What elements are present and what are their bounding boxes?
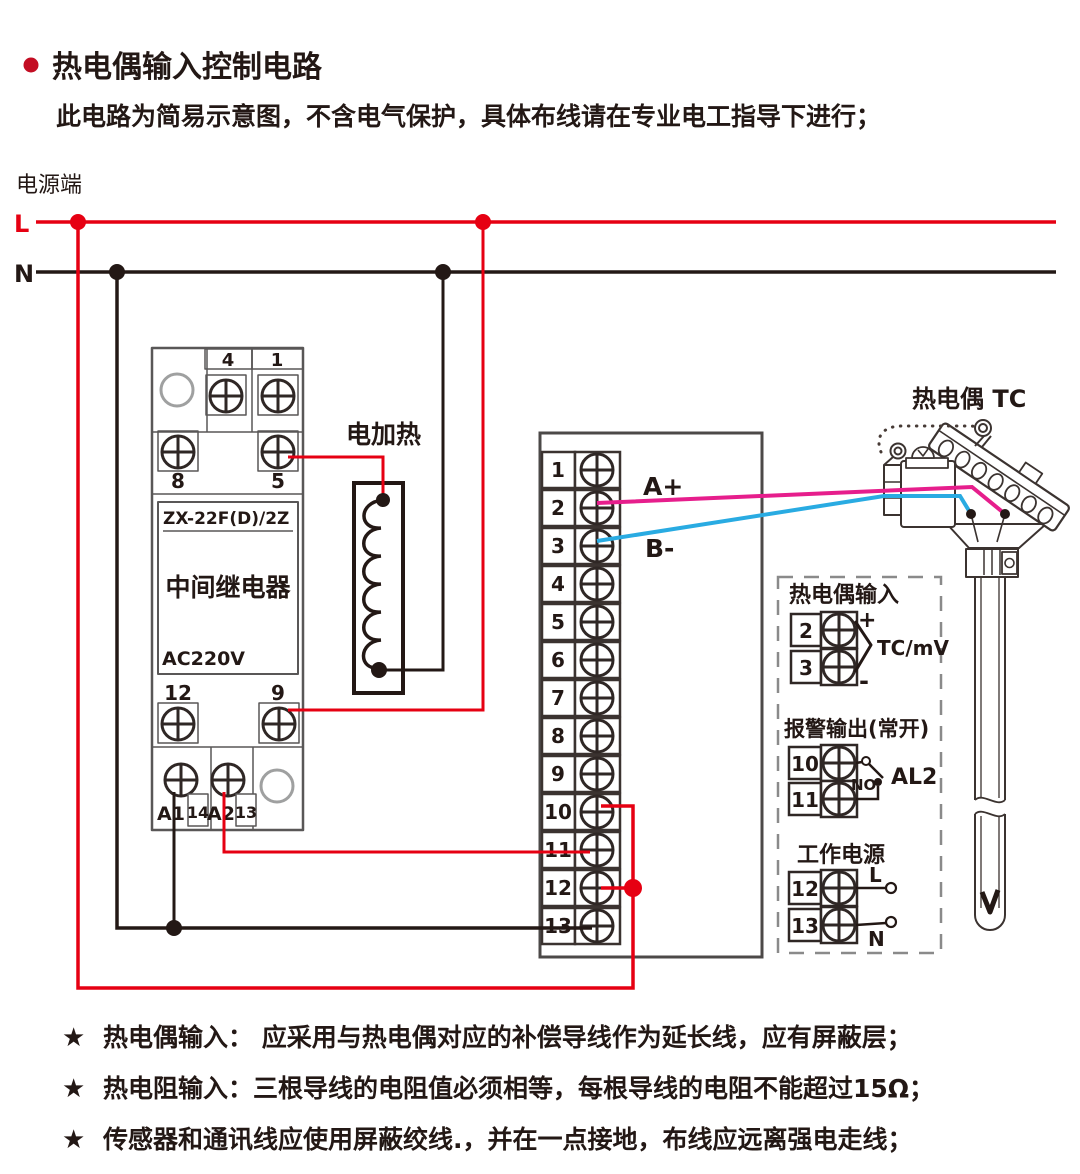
thermocouple-label: 热电偶 TC: [912, 385, 1026, 413]
note-1-star-icon: ★: [62, 1023, 85, 1053]
head-neck: [947, 524, 1046, 548]
relay-model: ZX-22F(D)/2Z: [163, 509, 289, 529]
panel-terminal-3: 3: [799, 656, 813, 680]
supply-l-pin-icon: [886, 883, 896, 893]
supply-n-label: N: [868, 927, 885, 951]
block-num-6: 6: [551, 648, 565, 672]
heater-outline: [354, 483, 403, 693]
relay-terminal-9-label: 9: [271, 681, 285, 705]
tc-range-label: TC/mV: [877, 636, 949, 660]
page-title: 热电偶输入控制电路: [52, 50, 323, 85]
al2-label: AL2: [891, 765, 937, 790]
relay-terminal-13-label: 13: [235, 803, 257, 822]
cap-plate: [906, 458, 948, 468]
block-num-5: 5: [551, 610, 565, 634]
probe-tip-arrow-icon: [982, 890, 998, 912]
tc-minus-label: -: [859, 667, 869, 695]
relay-terminal-14-label: 14: [187, 803, 209, 822]
instrument-terminal-block: 1 2 3 4 5 6 7 8 9 10 11 12 13: [540, 433, 762, 957]
panel-supply-section: 工作电源 12 13 L N: [789, 843, 896, 951]
power-source-label: 电源端: [16, 173, 82, 198]
footnotes: ★ 热电偶输入： 应采用与热电偶对应的补偿导线作为延长线，应有屏蔽层； ★ 热电…: [62, 1023, 934, 1155]
junction-n-left: [109, 264, 125, 280]
heater-bottom-terminal: [371, 662, 387, 678]
block-num-12: 12: [544, 876, 572, 900]
junction-a1: [166, 920, 182, 936]
relay-screw-4: [210, 380, 242, 412]
instrument-info-panel: 热电偶输入 2 3 + - TC/mV 报警输出(常开) 10 11: [778, 577, 949, 953]
block-num-1: 1: [551, 458, 565, 482]
b-minus-label: B-: [645, 534, 674, 563]
tc-terminal-b: [966, 509, 976, 519]
block-num-7: 7: [551, 686, 565, 710]
wiring-diagram-page: 热电偶输入控制电路 此电路为简易示意图，不含电气保护，具体布线请在专业电工指导下…: [0, 0, 1080, 1174]
relay-mount-hole-top: [161, 374, 193, 406]
relay-voltage: AC220V: [162, 648, 245, 670]
note-2-star-icon: ★: [62, 1074, 85, 1104]
line-l-label: L: [14, 210, 29, 238]
relay-screw-a1: [165, 764, 197, 796]
alarm-title: 报警输出(常开): [784, 717, 929, 741]
relay-terminal-5-label: 5: [271, 469, 285, 493]
collar-screw-icon: [1005, 559, 1014, 568]
junction-l-right: [475, 214, 491, 230]
a-plus-label: A+: [643, 472, 683, 501]
relay-terminal-1-label: 1: [271, 350, 284, 371]
thermocouple-probe: [975, 575, 1005, 930]
thermocouple-wiring-diagram: 热电偶输入控制电路 此电路为简易示意图，不含电气保护，具体布线请在专业电工指导下…: [0, 0, 1080, 1174]
relay-terminal-8-label: 8: [171, 469, 185, 493]
panel-screw-3: [823, 651, 855, 683]
chain-eyelet-top-icon: [975, 420, 991, 447]
relay-screw-8: [162, 436, 194, 468]
panel-terminal-2: 2: [799, 619, 813, 643]
panel-alarm-section: 报警输出(常开) 10 11 NO AL2: [784, 717, 937, 817]
relay-screw-12: [162, 708, 194, 740]
junction-block12: [624, 879, 642, 897]
block-num-10: 10: [544, 800, 572, 824]
relay-terminal-12-label: 12: [164, 681, 192, 705]
panel-terminal-11: 11: [791, 788, 819, 812]
note-3-star-icon: ★: [62, 1125, 85, 1155]
tc-input-title: 热电偶输入: [789, 582, 899, 608]
block-num-8: 8: [551, 724, 565, 748]
line-n-label: N: [14, 260, 34, 288]
block-num-3: 3: [551, 534, 565, 558]
relay-terminal-4-label: 4: [222, 350, 235, 371]
panel-screw-2: [823, 614, 855, 646]
relay-mount-hole-bottom: [261, 770, 293, 802]
block-num-11: 11: [544, 838, 572, 862]
note-1-text: 热电偶输入： 应采用与热电偶对应的补偿导线作为延长线，应有屏蔽层；: [103, 1023, 912, 1052]
relay-screw-a2: [212, 764, 244, 796]
block-num-4: 4: [551, 572, 565, 596]
block-num-9: 9: [551, 762, 565, 786]
junction-n-right: [435, 264, 451, 280]
junction-l-left: [70, 214, 86, 230]
relay-name: 中间继电器: [165, 573, 291, 602]
block-num-13: 13: [544, 914, 572, 938]
no-label: NO: [851, 776, 876, 794]
supply-n-pin-icon: [886, 917, 896, 927]
tc-terminal-a: [1000, 509, 1010, 519]
note-2-text: 热电阻输入：三根导线的电阻值必须相等，每根导线的电阻不能超过15Ω；: [103, 1074, 934, 1103]
page-subtitle: 此电路为简易示意图，不含电气保护，具体布线请在专业电工指导下进行；: [56, 102, 881, 131]
panel-terminal-12: 12: [791, 877, 819, 901]
note-3-text: 传感器和通讯线应使用屏蔽绞线.，并在一点接地，布线应远离强电走线；: [102, 1125, 913, 1154]
panel-terminal-10: 10: [791, 752, 819, 776]
panel-terminal-13: 13: [791, 914, 819, 938]
heater-top-terminal: [376, 493, 390, 507]
relay-terminal-a2-label: A2: [207, 803, 235, 825]
block-num-2: 2: [551, 496, 565, 520]
panel-screw-13: [823, 909, 855, 941]
relay-screw-9: [263, 708, 295, 740]
supply-l-label: L: [869, 863, 882, 887]
intermediate-relay: 4 1 8 5 ZX-22F(D)/2Z 中间继电器 AC220V 12 9: [152, 348, 303, 830]
relay-screw-5: [262, 436, 294, 468]
relay-terminal-a1-label: A1: [157, 803, 185, 825]
title-bullet-icon: [24, 58, 39, 73]
panel-screw-12: [823, 872, 855, 904]
heater-label: 电加热: [346, 420, 421, 449]
panel-tc-input-section: 热电偶输入 2 3 + - TC/mV: [789, 582, 949, 695]
relay-screw-1: [262, 380, 294, 412]
panel-screw-10: [823, 747, 855, 779]
